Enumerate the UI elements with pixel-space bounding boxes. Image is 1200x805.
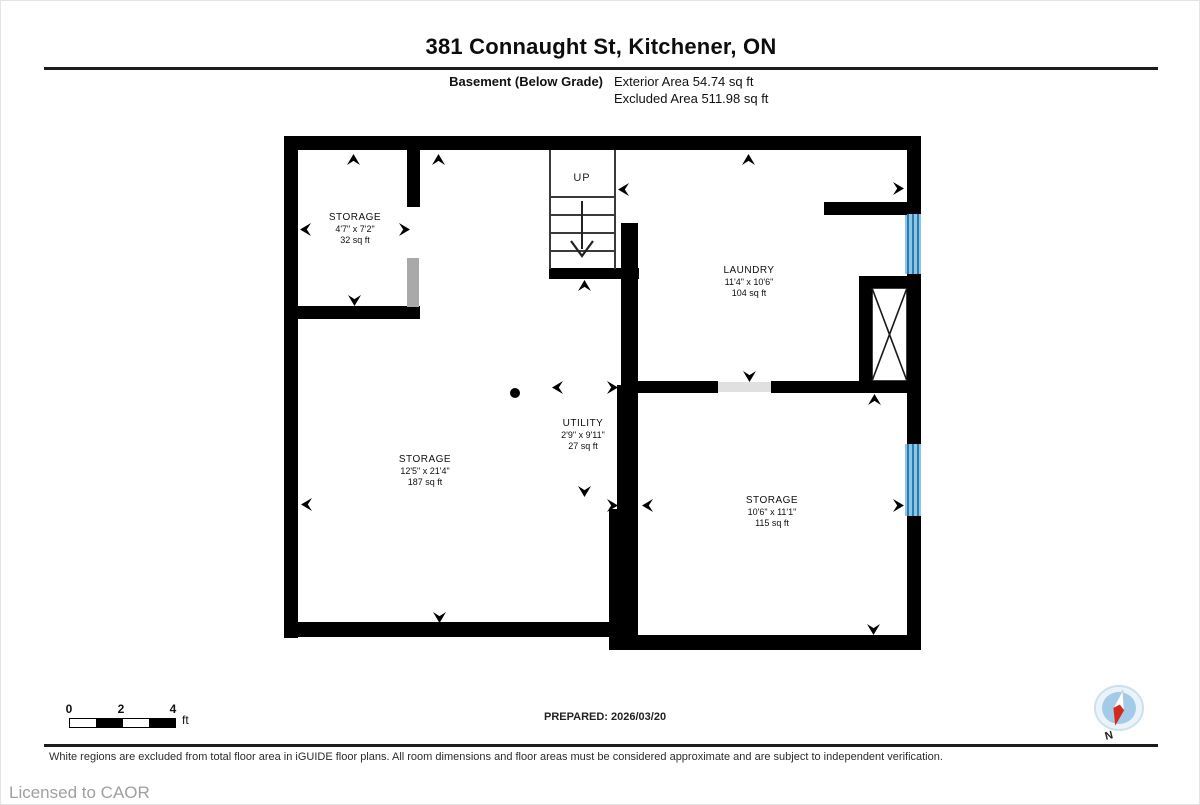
excluded-area: Excluded Area 511.98 sq ft (614, 91, 768, 106)
wall (284, 136, 298, 638)
stair-tread (549, 196, 616, 198)
dimension-arrow-icon (432, 154, 445, 165)
shaft-x-box (870, 286, 909, 383)
window (905, 444, 921, 516)
dimension-arrow-icon (868, 394, 881, 405)
dimension-arrow-icon (348, 295, 361, 306)
scale-segment (70, 719, 96, 727)
floor-plan-page: 381 Connaught St, Kitchener, ON Basement… (0, 0, 1200, 805)
stairs-up-label: UP (567, 172, 597, 184)
room-label-storage-3: STORAGE 10'6" x 11'1" 115 sq ft (746, 495, 798, 530)
dimension-arrow-icon (578, 486, 591, 497)
wall (617, 385, 638, 509)
dimension-arrow-icon (893, 182, 904, 195)
dimension-arrow-icon (399, 223, 410, 236)
license-text: Licensed to CAOR (9, 783, 150, 803)
wall (407, 150, 420, 207)
wall (638, 381, 718, 393)
scale-segment (149, 719, 175, 727)
scale-tick: 4 (163, 702, 183, 716)
window (905, 214, 921, 274)
scale-segment (123, 719, 149, 727)
room-label-laundry: LAUNDRY 11'4" x 10'6" 104 sq ft (723, 265, 774, 300)
wall (609, 635, 921, 650)
wall (907, 515, 921, 650)
footer-divider (44, 744, 1158, 747)
room-label-storage-1: STORAGE 4'7" x 7'2" 32 sq ft (329, 212, 381, 247)
header-divider (44, 67, 1158, 70)
door-opening (407, 258, 419, 307)
exterior-area: Exterior Area 54.74 sq ft (614, 74, 753, 89)
disclaimer-text: White regions are excluded from total fl… (49, 751, 1149, 763)
scale-tick: 2 (111, 702, 131, 716)
dimension-arrow-icon (893, 499, 904, 512)
page-title: 381 Connaught St, Kitchener, ON (1, 34, 1200, 60)
wall (284, 136, 921, 150)
column-dot (510, 388, 520, 398)
room-label-storage-2: STORAGE 12'5" x 21'4" 187 sq ft (399, 454, 451, 489)
dimension-arrow-icon (347, 154, 360, 165)
scale-tick: 0 (59, 702, 79, 716)
door-opening (718, 382, 771, 392)
wall (824, 202, 907, 215)
dimension-arrow-icon (642, 499, 653, 512)
dimension-arrow-icon (743, 371, 756, 382)
stairs-direction-arrow (567, 201, 599, 261)
wall (284, 306, 420, 319)
dimension-arrow-icon (618, 183, 629, 196)
room-label-utility: UTILITY 2'9" x 9'11" 27 sq ft (561, 418, 605, 453)
dimension-arrow-icon (867, 624, 880, 635)
floor-label: Basement (Below Grade) (251, 74, 603, 89)
dimension-arrow-icon (301, 498, 312, 511)
wall (621, 223, 638, 385)
dimension-arrow-icon (742, 154, 755, 165)
dimension-arrow-icon (578, 280, 591, 291)
prepared-date: PREPARED: 2026/03/20 (544, 711, 666, 723)
wall (907, 273, 921, 445)
scale-bar (69, 718, 176, 728)
compass-icon (1093, 685, 1145, 733)
scale-unit: ft (182, 713, 189, 727)
scale-segment (96, 719, 122, 727)
wall (284, 622, 638, 637)
wall (907, 136, 921, 215)
dimension-arrow-icon (552, 381, 563, 394)
dimension-arrow-icon (300, 223, 311, 236)
